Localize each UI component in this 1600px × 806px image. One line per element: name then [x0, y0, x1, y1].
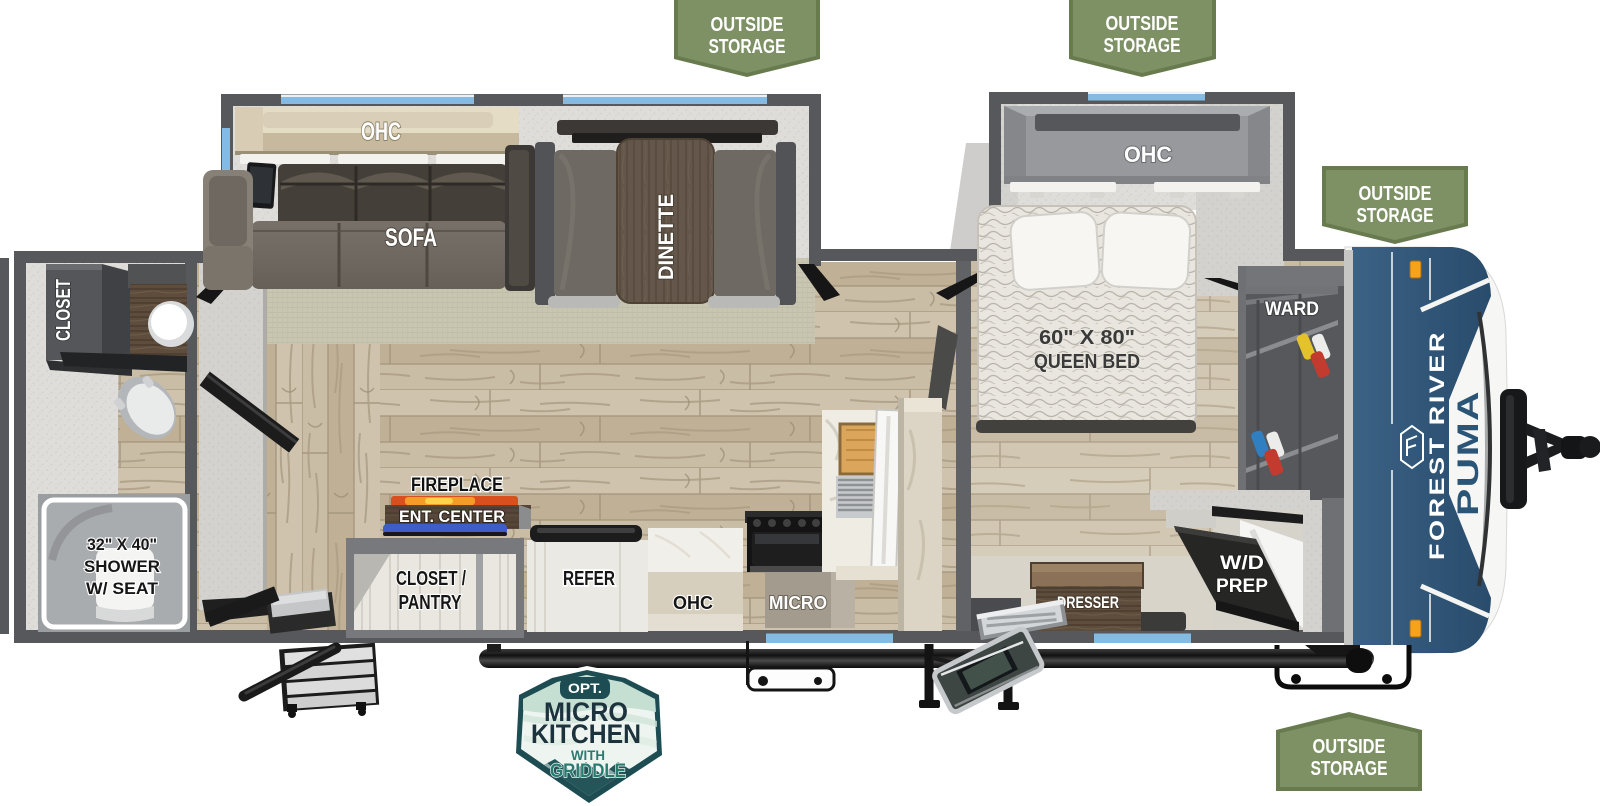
svg-text:32" X 40": 32" X 40" — [87, 535, 157, 554]
svg-text:OHC: OHC — [673, 593, 713, 613]
svg-text:60" X 80": 60" X 80" — [1039, 327, 1135, 349]
svg-text:KITCHEN: KITCHEN — [531, 719, 641, 749]
svg-text:OUTSIDE: OUTSIDE — [1359, 183, 1432, 205]
svg-text:FIREPLACE: FIREPLACE — [411, 475, 503, 496]
svg-text:DRESSER: DRESSER — [1057, 593, 1119, 612]
svg-text:PANTRY: PANTRY — [399, 592, 463, 614]
svg-text:PREP: PREP — [1216, 576, 1268, 597]
svg-text:CLOSET: CLOSET — [53, 279, 75, 341]
svg-text:GRIDDLE: GRIDDLE — [550, 761, 626, 782]
svg-text:STORAGE: STORAGE — [1311, 758, 1388, 780]
svg-text:W/ SEAT: W/ SEAT — [86, 579, 159, 598]
svg-text:QUEEN BED: QUEEN BED — [1034, 351, 1140, 373]
svg-text:OHC: OHC — [361, 118, 401, 146]
svg-text:OUTSIDE: OUTSIDE — [711, 14, 784, 36]
svg-text:REFER: REFER — [563, 568, 615, 590]
svg-text:WARD: WARD — [1265, 299, 1319, 320]
svg-text:MICRO: MICRO — [769, 593, 827, 613]
svg-text:PUMA: PUMA — [1452, 390, 1485, 516]
svg-text:STORAGE: STORAGE — [1357, 205, 1434, 227]
svg-text:DINETTE: DINETTE — [655, 194, 678, 280]
svg-text:STORAGE: STORAGE — [709, 36, 786, 58]
svg-text:OUTSIDE: OUTSIDE — [1313, 736, 1386, 758]
svg-text:ENT. CENTER: ENT. CENTER — [399, 507, 505, 526]
svg-text:FOREST RIVER: FOREST RIVER — [1426, 330, 1449, 560]
svg-text:SHOWER: SHOWER — [84, 557, 160, 576]
svg-text:OUTSIDE: OUTSIDE — [1106, 13, 1179, 35]
svg-text:STORAGE: STORAGE — [1104, 35, 1181, 57]
svg-text:CLOSET /: CLOSET / — [396, 568, 466, 590]
svg-text:OPT.: OPT. — [568, 680, 602, 696]
svg-text:OHC: OHC — [1124, 142, 1172, 167]
svg-text:W/D: W/D — [1220, 553, 1264, 574]
svg-text:SOFA: SOFA — [385, 224, 437, 252]
